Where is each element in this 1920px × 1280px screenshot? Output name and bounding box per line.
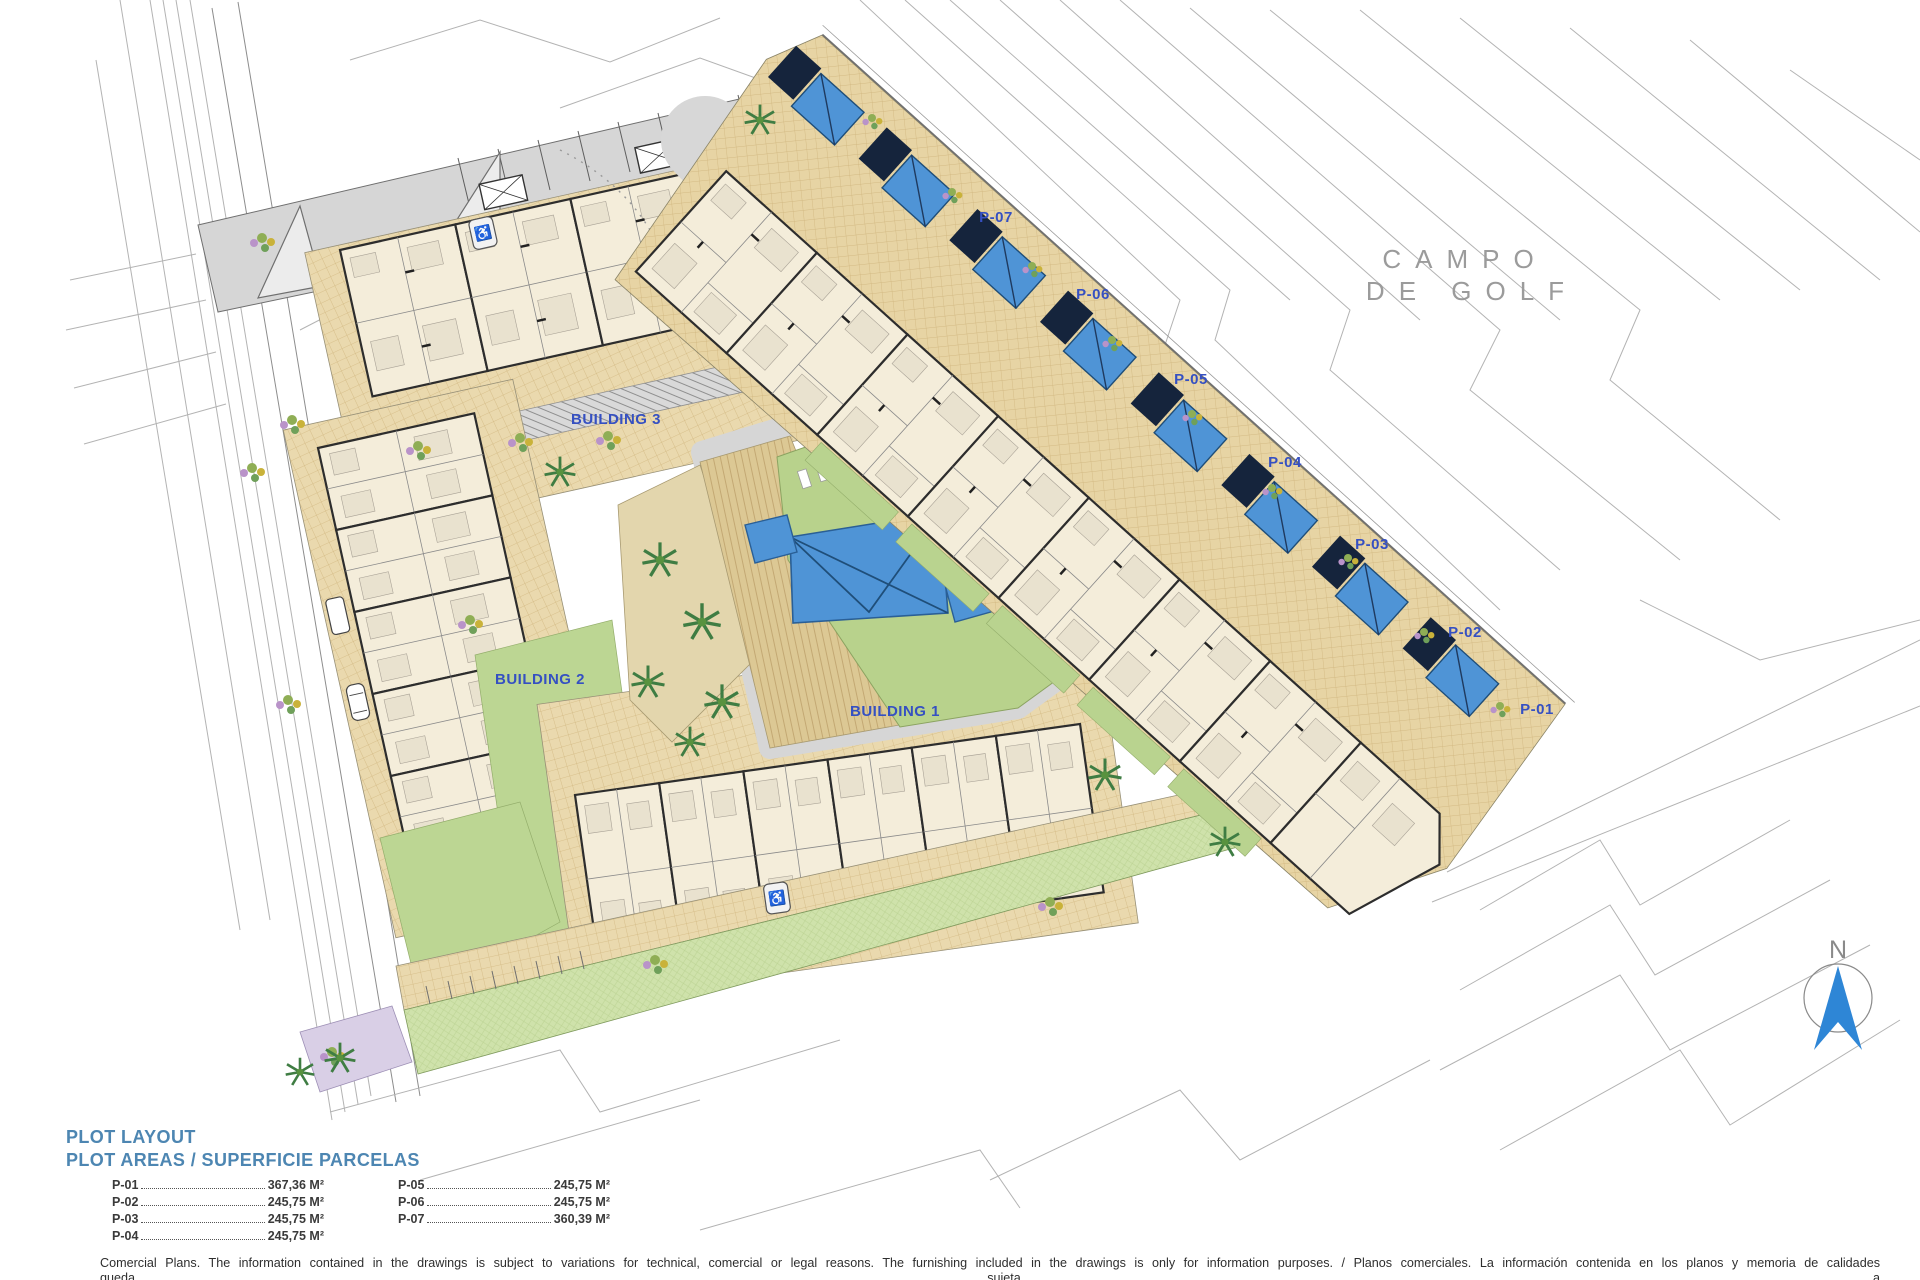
legend: PLOT LAYOUT PLOT AREAS / SUPERFICIE PARC… (66, 1126, 766, 1172)
site-plan-page: ♿ ♿ BUILDING 3 BUILDING 2 BUILDING 1 P-0… (0, 0, 1920, 1280)
plot-label-p07: P-07 (979, 209, 1013, 226)
plot-id: P-03 (112, 1212, 138, 1226)
plot-label-p01: P-01 (1520, 701, 1554, 718)
building-1-label: BUILDING 1 (850, 703, 940, 720)
building-2-label: BUILDING 2 (495, 671, 585, 688)
plot-area-row: P-05245,75 M² (398, 1178, 610, 1195)
disabled-parking-icon: ♿ (763, 881, 791, 914)
plot-area-row: P-01367,36 M² (112, 1178, 324, 1195)
dotted-leader (141, 1205, 264, 1206)
plot-id: P-02 (112, 1195, 138, 1209)
legend-title: PLOT LAYOUT (66, 1126, 766, 1149)
building-3-label: BUILDING 3 (571, 411, 661, 428)
golf-course-label-line2: DE GOLF (1366, 276, 1578, 306)
plot-area-value: 245,75 M² (554, 1178, 610, 1192)
dotted-leader (141, 1222, 264, 1223)
plot-id: P-04 (112, 1229, 138, 1243)
plot-area-value: 245,75 M² (268, 1195, 324, 1209)
plot-area-value: 360,39 M² (554, 1212, 610, 1226)
disclaimer-line-1: Comercial Plans. The information contain… (100, 1256, 1880, 1280)
plot-area-value: 245,75 M² (268, 1212, 324, 1226)
plot-label-p06: P-06 (1076, 286, 1110, 303)
dotted-leader (427, 1188, 550, 1189)
legend-subtitle: PLOT AREAS / SUPERFICIE PARCELAS (66, 1149, 766, 1172)
plot-id: P-05 (398, 1178, 424, 1192)
plot-label-p02: P-02 (1448, 624, 1482, 641)
plot-areas-right-column: P-05245,75 M² P-06245,75 M² P-07360,39 M… (398, 1178, 610, 1229)
site-plan-drawing: ♿ ♿ BUILDING 3 BUILDING 2 BUILDING 1 P-0… (0, 0, 1920, 1280)
plot-area-row: P-03245,75 M² (112, 1212, 324, 1229)
dotted-leader (427, 1205, 550, 1206)
disclaimer: Comercial Plans. The information contain… (100, 1256, 1880, 1280)
plot-area-value: 245,75 M² (554, 1195, 610, 1209)
plot-area-row: P-02245,75 M² (112, 1195, 324, 1212)
plot-areas-left-column: P-01367,36 M² P-02245,75 M² P-03245,75 M… (112, 1178, 324, 1246)
dotted-leader (141, 1239, 264, 1240)
plot-label-p03: P-03 (1355, 536, 1389, 553)
golf-course-label-line1: CAMPO (1382, 244, 1547, 274)
plot-area-row: P-04245,75 M² (112, 1229, 324, 1246)
plot-area-row: P-07360,39 M² (398, 1212, 610, 1229)
north-arrow-n: N (1829, 936, 1847, 964)
plot-id: P-07 (398, 1212, 424, 1226)
plot-area-value: 245,75 M² (268, 1229, 324, 1243)
plot-id: P-06 (398, 1195, 424, 1209)
north-arrow-needle (1814, 966, 1862, 1050)
plot-label-p04: P-04 (1268, 454, 1302, 471)
dotted-leader (141, 1188, 264, 1189)
dotted-leader (427, 1222, 550, 1223)
plot-id: P-01 (112, 1178, 138, 1192)
north-arrow: N (1804, 936, 1872, 1050)
plot-area-row: P-06245,75 M² (398, 1195, 610, 1212)
plot-label-p05: P-05 (1174, 371, 1208, 388)
plot-area-value: 367,36 M² (268, 1178, 324, 1192)
